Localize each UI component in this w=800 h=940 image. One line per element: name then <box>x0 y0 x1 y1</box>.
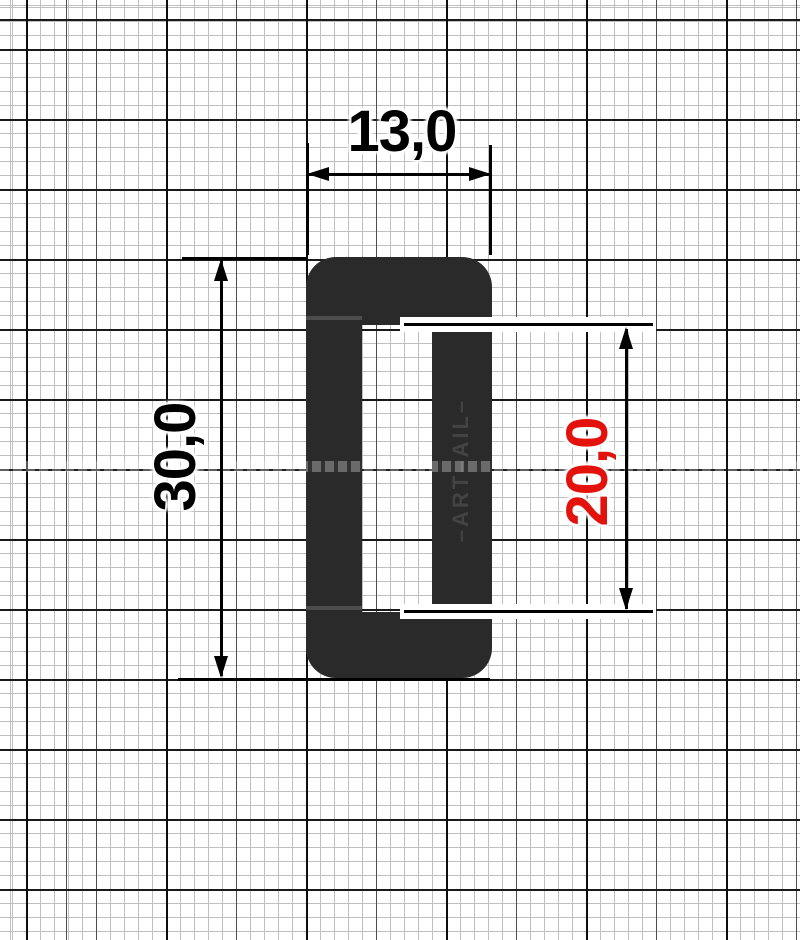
arrowhead-up-icon <box>214 259 228 281</box>
arrowhead-up-icon <box>619 327 633 349</box>
mold-seam-bottom <box>306 606 362 610</box>
inner-height-dimension-line <box>625 329 628 609</box>
arrowhead-left-icon <box>307 167 329 181</box>
outer-height-extension-line-top <box>182 257 308 260</box>
arrowhead-down-icon <box>619 588 633 610</box>
arrowhead-right-icon <box>469 167 491 181</box>
outer-width-extension-line-left <box>306 143 309 255</box>
arrowhead-down-icon <box>214 656 228 678</box>
outer-height-extension-line-bottom <box>178 678 490 681</box>
outer-width-dimension-line <box>309 173 490 176</box>
watermark-band <box>0 461 800 472</box>
inner-height-extension-line-top <box>404 323 653 326</box>
inner-height-dimension-label: 20,0 <box>558 387 618 557</box>
outer-width-extension-line-right <box>489 145 492 255</box>
outer-height-dimension-line <box>220 260 223 676</box>
mold-seam-top <box>306 316 362 320</box>
inner-height-extension-line-bottom <box>404 610 653 613</box>
drawing-canvas: –ART–AIL– 13,0 30,0 20,0 <box>0 0 800 940</box>
outer-height-dimension-label: 30,0 <box>146 377 206 537</box>
outer-width-dimension-label: 13,0 <box>322 102 482 162</box>
